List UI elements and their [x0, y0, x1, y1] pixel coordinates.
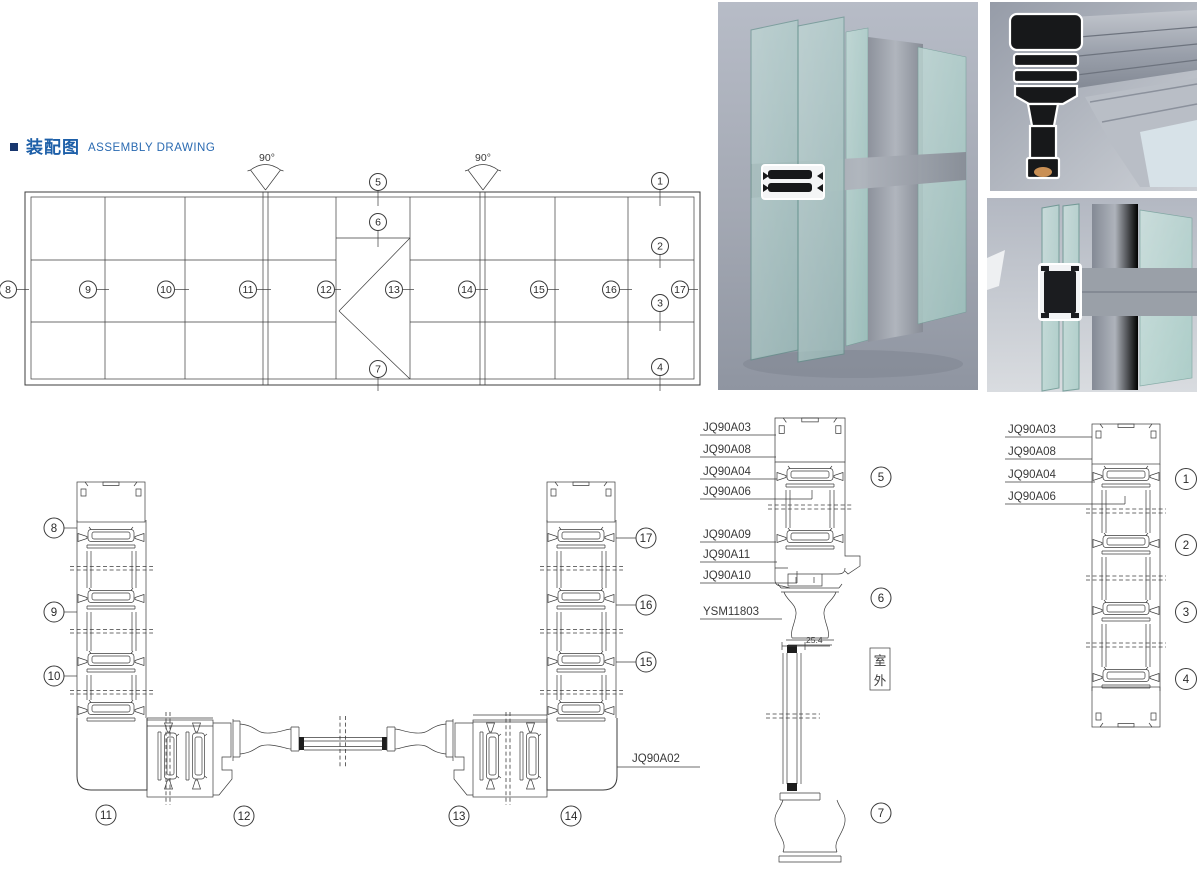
- outdoor-label: 室 外: [870, 648, 890, 690]
- svg-text:15: 15: [533, 284, 545, 296]
- svg-text:16: 16: [605, 284, 617, 296]
- svg-text:JQ90A06: JQ90A06: [703, 486, 751, 498]
- svg-text:25.4: 25.4: [806, 635, 823, 645]
- svg-text:90°: 90°: [259, 152, 275, 164]
- render-cross-intersection: [987, 198, 1197, 392]
- svg-text:4: 4: [1183, 674, 1190, 686]
- vertical-section-mid: JQ90A03 JQ90A08 JQ90A04 JQ90A06 JQ90A09 …: [695, 405, 900, 869]
- svg-text:JQ90A03: JQ90A03: [703, 422, 751, 434]
- svg-text:YSM11803: YSM11803: [703, 606, 759, 618]
- mid-callouts: 5 6 7: [871, 467, 891, 823]
- svg-text:JQ90A02: JQ90A02: [632, 753, 680, 765]
- svg-text:5: 5: [878, 472, 884, 484]
- svg-text:JQ90A04: JQ90A04: [703, 466, 752, 478]
- svg-text:7: 7: [375, 364, 381, 376]
- svg-text:3: 3: [1183, 607, 1189, 619]
- svg-text:90°: 90°: [475, 152, 491, 164]
- plan-grid: [25, 192, 700, 385]
- svg-text:JQ90A10: JQ90A10: [703, 570, 751, 582]
- opening-panel-symbol: [336, 238, 410, 379]
- svg-text:17: 17: [674, 284, 686, 296]
- horizontal-section-drawing: JQ90A02 8 9 10 17 16 15 11 12 13 14: [0, 460, 710, 865]
- svg-text:JQ90A03: JQ90A03: [1008, 424, 1056, 436]
- svg-text:JQ90A06: JQ90A06: [1008, 491, 1056, 503]
- svg-text:9: 9: [85, 284, 91, 296]
- catalog-page: 装配图 ASSEMBLY DRAWING 90°: [0, 0, 1200, 869]
- render-curtain-wall-large: [718, 2, 978, 390]
- svg-text:8: 8: [51, 523, 57, 535]
- right-profile: [1086, 424, 1166, 727]
- svg-text:1: 1: [657, 176, 663, 188]
- svg-text:7: 7: [878, 808, 884, 820]
- svg-text:6: 6: [878, 593, 884, 605]
- svg-text:11: 11: [100, 810, 112, 822]
- svg-text:3: 3: [657, 298, 663, 310]
- svg-text:9: 9: [51, 607, 57, 619]
- svg-text:外: 外: [874, 674, 887, 688]
- svg-text:13: 13: [388, 284, 400, 296]
- vertical-section-right: JQ90A03 JQ90A08 JQ90A04 JQ90A06 1 2 3 4: [1000, 405, 1200, 745]
- svg-text:16: 16: [640, 600, 653, 612]
- svg-text:1: 1: [1183, 474, 1189, 486]
- svg-text:2: 2: [1183, 540, 1189, 552]
- angle-annotation-left: 90°: [248, 152, 284, 190]
- svg-text:JQ90A09: JQ90A09: [703, 529, 751, 541]
- right-mullion-column: [540, 482, 623, 721]
- svg-text:JQ90A04: JQ90A04: [1008, 469, 1057, 481]
- svg-text:5: 5: [375, 177, 381, 189]
- svg-text:14: 14: [461, 284, 473, 296]
- svg-text:JQ90A08: JQ90A08: [703, 444, 751, 456]
- plan-callouts: 8 9 10 11 12 13 14 15 16 17 5 6 7 1 2 3 …: [0, 173, 689, 378]
- right-callouts: 1 2 3 4: [1176, 469, 1197, 690]
- svg-text:JQ90A08: JQ90A08: [1008, 446, 1056, 458]
- svg-text:JQ90A11: JQ90A11: [703, 549, 750, 561]
- bottom-assembly: [77, 712, 617, 805]
- left-mullion-column: [70, 482, 153, 721]
- svg-text:10: 10: [48, 671, 61, 683]
- svg-text:14: 14: [565, 811, 578, 823]
- profile-cross-section-white: [762, 165, 824, 199]
- plan-leaders: [17, 190, 699, 392]
- svg-text:2: 2: [657, 241, 663, 253]
- part-label-jq90a02: JQ90A02: [617, 753, 700, 767]
- svg-text:12: 12: [320, 284, 332, 296]
- svg-text:17: 17: [640, 533, 653, 545]
- angle-annotation-right: 90°: [465, 152, 501, 190]
- svg-text:11: 11: [243, 284, 254, 296]
- mid-part-labels: JQ90A03 JQ90A08 JQ90A04 JQ90A06 JQ90A09 …: [700, 422, 812, 619]
- plan-view-drawing: 90° 90° 8 9 10 11 12 13 14 15: [0, 150, 710, 400]
- svg-text:4: 4: [657, 362, 663, 374]
- black-profile-section: [1039, 264, 1081, 320]
- render-profile-closeup: [990, 2, 1197, 191]
- svg-text:6: 6: [375, 217, 381, 229]
- svg-text:室: 室: [874, 653, 887, 668]
- svg-text:8: 8: [5, 284, 11, 296]
- svg-text:15: 15: [640, 657, 653, 669]
- svg-text:10: 10: [160, 284, 172, 296]
- svg-text:12: 12: [238, 811, 251, 823]
- svg-text:13: 13: [453, 811, 466, 823]
